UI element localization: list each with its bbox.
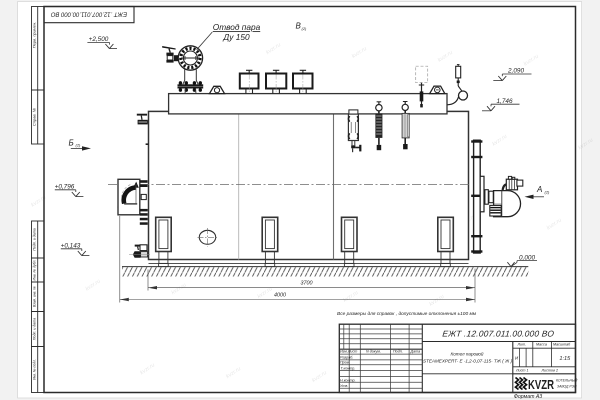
svg-text:Пров.: Пров. <box>340 361 350 365</box>
svg-text:Отвод пара: Отвод пара <box>213 22 261 32</box>
svg-text:Подп.: Подп. <box>393 350 403 354</box>
svg-text:3700: 3700 <box>301 281 313 287</box>
svg-text:Т.контр.: Т.контр. <box>341 366 356 370</box>
svg-text:ЕЖТ .12.007.011.00.000 ВО: ЕЖТ .12.007.011.00.000 ВО <box>51 11 128 17</box>
svg-text:КОТЕЛЬНЫЙ: КОТЕЛЬНЫЙ <box>556 379 578 383</box>
svg-text:Масса: Масса <box>536 343 547 347</box>
svg-text:Все размеры для справок , допу: Все размеры для справок , допустимые отк… <box>337 311 477 317</box>
svg-text:2,090: 2,090 <box>507 68 524 75</box>
svg-text:ЗАВОД РЭП: ЗАВОД РЭП <box>557 385 577 389</box>
svg-text:Листов 2: Листов 2 <box>541 369 559 373</box>
svg-text:A: A <box>536 185 542 194</box>
svg-text:Справ. №: Справ. № <box>32 107 37 126</box>
svg-text:Формат А3: Формат А3 <box>514 394 542 400</box>
svg-text:Б: Б <box>69 139 74 148</box>
svg-text:(2): (2) <box>302 26 308 31</box>
svg-text:Ду 150: Ду 150 <box>222 32 250 42</box>
svg-text:+2,500: +2,500 <box>89 36 109 43</box>
svg-text:N докум.: N докум. <box>366 350 381 354</box>
svg-text:4000: 4000 <box>274 292 286 298</box>
svg-text:Перв. примен.: Перв. примен. <box>32 22 37 49</box>
svg-text:+0,796: +0,796 <box>55 183 75 190</box>
svg-text:Инв. № подл.: Инв. № подл. <box>33 359 37 380</box>
svg-text:Масштаб: Масштаб <box>553 343 571 347</box>
svg-text:1:15: 1:15 <box>559 356 571 362</box>
svg-text:Инв. № дубл.: Инв. № дубл. <box>33 260 37 281</box>
svg-text:Дата: Дата <box>410 350 421 354</box>
svg-text:ЕЖТ .12.007.011.00.000 ВО: ЕЖТ .12.007.011.00.000 ВО <box>442 329 555 339</box>
svg-text:1,746: 1,746 <box>497 98 513 105</box>
svg-text:(2): (2) <box>76 143 82 148</box>
svg-text:(2): (2) <box>545 190 551 195</box>
svg-text:+0,143: +0,143 <box>61 242 81 249</box>
svg-text:Лист 1: Лист 1 <box>515 369 529 373</box>
svg-text:Н.контр.: Н.контр. <box>340 378 356 382</box>
svg-text:Котел паровой: Котел паровой <box>451 350 484 356</box>
svg-text:Взам. инв. №: Взам. инв. № <box>33 286 37 307</box>
svg-text:Подп. и дата: Подп. и дата <box>33 228 37 251</box>
svg-text:Лит.: Лит. <box>517 343 527 347</box>
svg-text:KVZR: KVZR <box>528 377 554 392</box>
svg-text:Подп. и дата: Подп. и дата <box>33 318 37 341</box>
svg-text:Изм.Лист: Изм.Лист <box>340 350 357 354</box>
svg-text:Утв.: Утв. <box>340 384 348 388</box>
svg-text:STEAMEXPERT- Е -1,2-0,07-115-: STEAMEXPERT- Е -1,2-0,07-115- ТЖ ( Ж ) <box>423 359 513 364</box>
svg-text:Разраб.: Разраб. <box>340 356 353 360</box>
